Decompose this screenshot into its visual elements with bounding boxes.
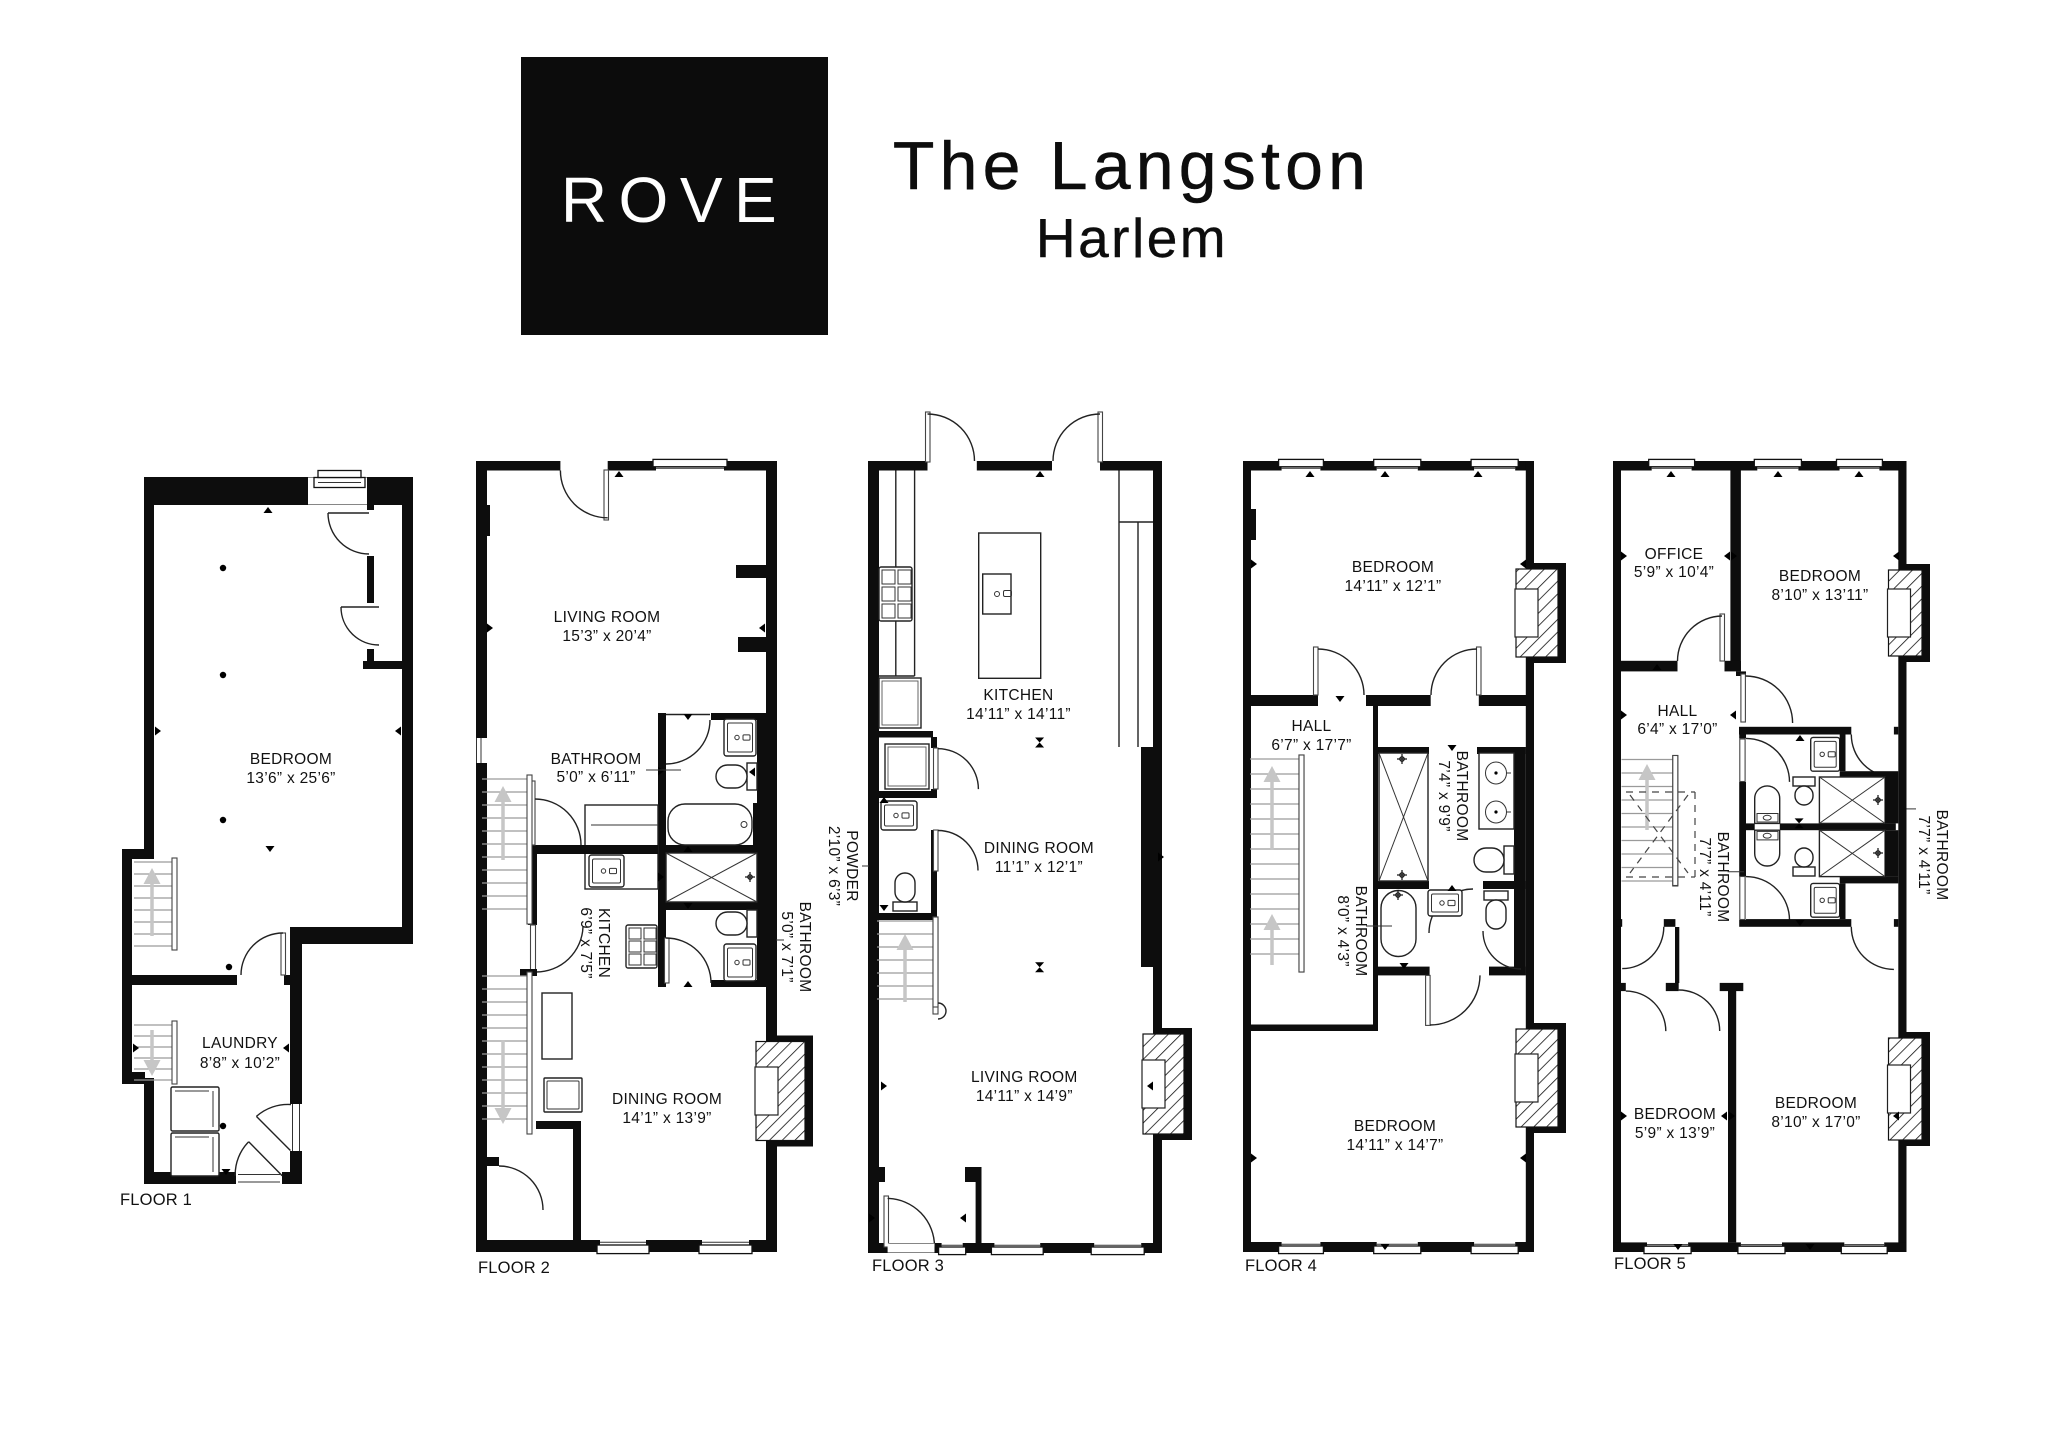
svg-text:5’9” x 10’4”: 5’9” x 10’4” (1634, 564, 1714, 581)
svg-text:8’0” x 4’3”: 8’0” x 4’3” (1334, 895, 1351, 966)
svg-text:DINING ROOM: DINING ROOM (612, 1091, 722, 1108)
svg-text:FLOOR 4: FLOOR 4 (1245, 1257, 1317, 1275)
svg-text:7’4” x 9’9”: 7’4” x 9’9” (1435, 760, 1452, 831)
svg-text:15’3” x 20’4”: 15’3” x 20’4” (562, 628, 651, 645)
svg-text:BEDROOM: BEDROOM (250, 751, 332, 768)
svg-text:LAUNDRY: LAUNDRY (202, 1035, 278, 1052)
svg-text:BEDROOM: BEDROOM (1779, 568, 1861, 585)
svg-text:FLOOR 2: FLOOR 2 (478, 1259, 550, 1277)
svg-text:FLOOR 3: FLOOR 3 (872, 1257, 944, 1275)
svg-text:LIVING ROOM: LIVING ROOM (554, 609, 661, 626)
svg-text:5’0” x 6’11”: 5’0” x 6’11” (556, 769, 635, 786)
svg-text:BATHROOM: BATHROOM (1453, 751, 1470, 842)
svg-text:6’9” x 7’5”: 6’9” x 7’5” (577, 907, 594, 978)
svg-text:5’0” x 7’1”: 5’0” x 7’1” (778, 911, 795, 982)
svg-text:14’11” x 14’9”: 14’11” x 14’9” (976, 1088, 1073, 1105)
svg-text:14’1” x 13’9”: 14’1” x 13’9” (622, 1110, 711, 1127)
svg-text:POWDER: POWDER (843, 830, 860, 902)
svg-text:KITCHEN: KITCHEN (595, 908, 612, 978)
svg-text:8’8” x 10’2”: 8’8” x 10’2” (200, 1055, 280, 1072)
svg-text:FLOOR 1: FLOOR 1 (120, 1191, 192, 1209)
svg-text:KITCHEN: KITCHEN (983, 687, 1053, 704)
svg-text:HALL: HALL (1292, 718, 1332, 735)
svg-text:FLOOR 5: FLOOR 5 (1614, 1255, 1686, 1273)
svg-text:13’6” x 25’6”: 13’6” x 25’6” (246, 770, 335, 787)
svg-text:14’11” x 14’7”: 14’11” x 14’7” (1347, 1137, 1444, 1154)
svg-text:2’10” x 6’3”: 2’10” x 6’3” (825, 826, 842, 906)
svg-text:BATHROOM: BATHROOM (1933, 810, 1950, 901)
svg-text:7’7” x 4’11”: 7’7” x 4’11” (1915, 815, 1932, 894)
svg-text:14’11” x 12’1”: 14’11” x 12’1” (1345, 578, 1442, 595)
svg-text:BEDROOM: BEDROOM (1775, 1095, 1857, 1112)
svg-text:BATHROOM: BATHROOM (1714, 832, 1731, 923)
svg-text:BATHROOM: BATHROOM (551, 751, 642, 768)
svg-text:BEDROOM: BEDROOM (1354, 1118, 1436, 1135)
svg-text:BEDROOM: BEDROOM (1634, 1106, 1716, 1123)
svg-text:BATHROOM: BATHROOM (1352, 886, 1369, 977)
svg-text:DINING ROOM: DINING ROOM (984, 840, 1094, 857)
svg-text:5’9” x 13’9”: 5’9” x 13’9” (1635, 1125, 1715, 1142)
svg-text:LIVING ROOM: LIVING ROOM (971, 1069, 1078, 1086)
svg-text:OFFICE: OFFICE (1645, 546, 1704, 563)
svg-text:8’10” x 17’0”: 8’10” x 17’0” (1771, 1114, 1860, 1131)
svg-text:6’7” x 17’7”: 6’7” x 17’7” (1271, 737, 1351, 754)
svg-text:14’11” x 14’11”: 14’11” x 14’11” (966, 706, 1071, 723)
svg-text:HALL: HALL (1658, 703, 1698, 720)
svg-text:6’4” x 17’0”: 6’4” x 17’0” (1637, 721, 1717, 738)
svg-text:11’1” x 12’1”: 11’1” x 12’1” (995, 859, 1083, 876)
svg-text:BATHROOM: BATHROOM (796, 902, 813, 993)
svg-text:8’10” x 13’11”: 8’10” x 13’11” (1772, 587, 1869, 604)
svg-text:BEDROOM: BEDROOM (1352, 559, 1434, 576)
svg-text:7’7” x 4’11”: 7’7” x 4’11” (1696, 837, 1713, 916)
